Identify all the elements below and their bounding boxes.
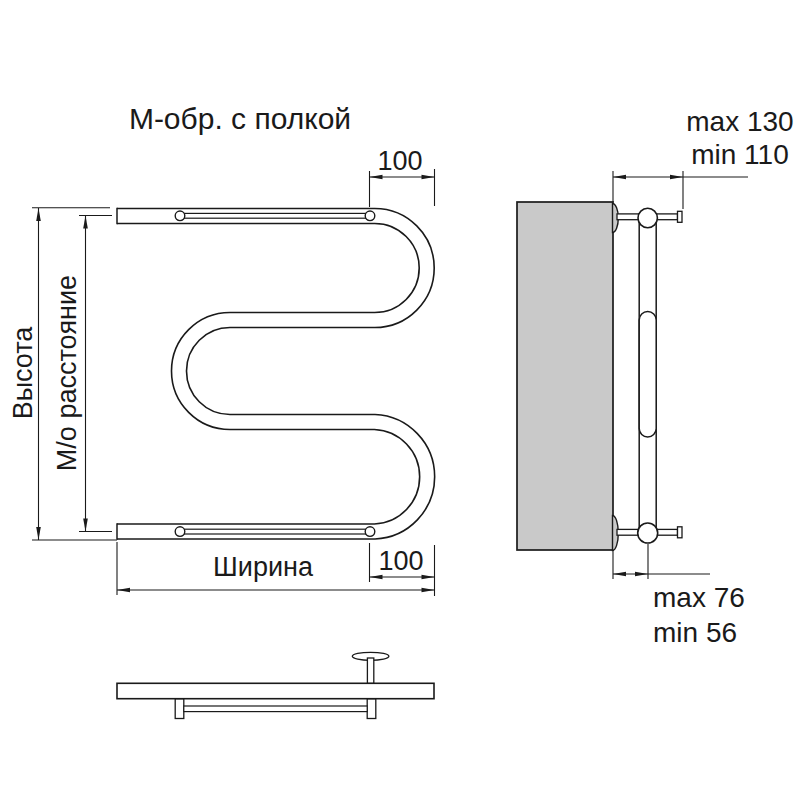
- pipe-section-bottom: [638, 523, 658, 543]
- shelf-pin-right-icon: [365, 211, 375, 221]
- rail-bar: [117, 683, 434, 698]
- drawing-canvas: Высота М/о расстояние 100 100: [0, 0, 800, 800]
- shelf-leg-right: [367, 699, 376, 719]
- wall-bottom-min-value: min 56: [653, 617, 737, 648]
- technical-drawing-page: Высота М/о расстояние 100 100: [0, 0, 800, 800]
- wall-top-max-value: max 130: [686, 106, 793, 137]
- dimension-wall-top: max 130 min 110: [613, 106, 794, 209]
- pipe-section-top: [638, 208, 657, 227]
- height-label: Высота: [8, 326, 38, 420]
- wall-panel: [517, 202, 613, 550]
- rod-end-cap: [678, 527, 683, 538]
- shelf-rod-topview: [184, 706, 367, 712]
- m-pipe-outer: [117, 216, 427, 532]
- dimension-offset-bottom: 100: [370, 543, 435, 596]
- wall-bottom-max-value: max 76: [653, 582, 745, 613]
- top-view: [117, 652, 434, 718]
- dimension-wall-bottom: max 76 min 56: [613, 544, 745, 648]
- offset-bottom-value: 100: [378, 546, 423, 576]
- dimension-offset-top: 100: [370, 146, 435, 207]
- m-pipe-inner: [117, 216, 427, 532]
- drawing-title: М-обр. с полкой: [129, 102, 351, 135]
- axis-distance-label: М/о расстояние: [52, 275, 82, 471]
- shelf-pin-right-icon: [365, 527, 375, 537]
- shelf-pin-left-icon: [175, 527, 185, 537]
- shelf-pin-left-icon: [175, 211, 185, 221]
- dimension-axis-distance: М/о расстояние: [52, 216, 112, 532]
- shelf-leg-left: [175, 699, 184, 719]
- bracket-stem: [367, 658, 373, 684]
- offset-top-value: 100: [377, 146, 422, 176]
- side-view: max 130 min 110 max 76 min 56: [517, 106, 794, 648]
- front-view: Высота М/о расстояние 100 100: [8, 146, 435, 596]
- rod-end-cap: [678, 211, 683, 222]
- pipe-coupling: [639, 312, 656, 438]
- width-label: Ширина: [213, 552, 314, 582]
- vertical-pipe: [638, 208, 658, 543]
- wall-top-min-value: min 110: [691, 139, 789, 170]
